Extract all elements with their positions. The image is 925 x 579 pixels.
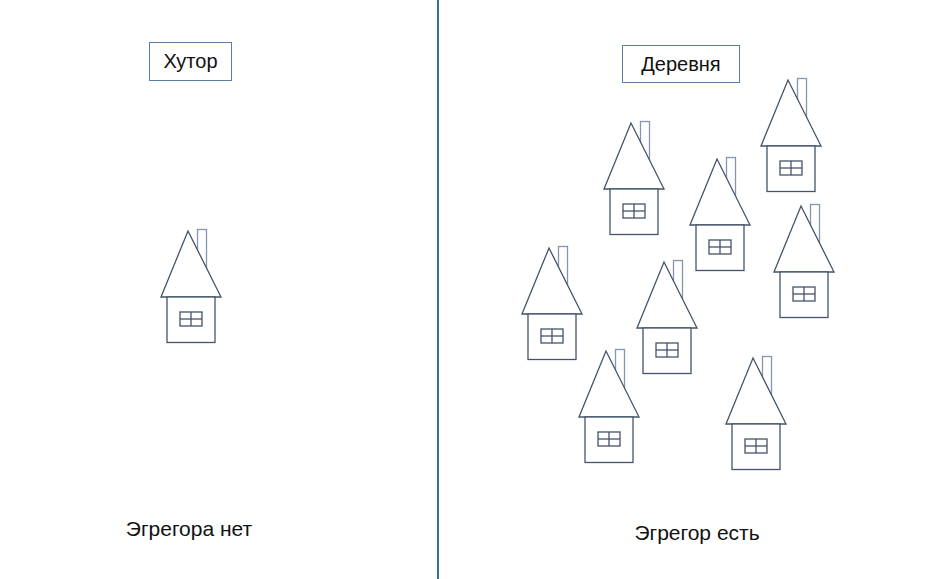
house-icon bbox=[636, 260, 698, 374]
house-icon bbox=[578, 349, 640, 463]
house-icon bbox=[760, 78, 822, 192]
right-panel-caption: Эгрегор есть bbox=[634, 521, 759, 545]
roof-icon bbox=[579, 351, 639, 417]
roof-icon bbox=[522, 248, 582, 314]
roof-icon bbox=[604, 123, 664, 189]
house-icon bbox=[725, 356, 787, 470]
diagram-canvas: Хутор Деревня bbox=[0, 0, 925, 579]
house-icon bbox=[521, 246, 583, 360]
house-icon bbox=[689, 157, 751, 271]
roof-icon bbox=[761, 80, 821, 146]
roof-icon bbox=[690, 159, 750, 225]
houses-layer bbox=[0, 0, 925, 579]
left-panel-caption: Эгрегора нет bbox=[126, 517, 252, 541]
roof-icon bbox=[774, 206, 834, 272]
house-icon bbox=[603, 121, 665, 235]
roof-icon bbox=[637, 262, 697, 328]
roof-icon bbox=[161, 231, 221, 297]
house-icon bbox=[160, 229, 222, 343]
roof-icon bbox=[726, 358, 786, 424]
house-icon bbox=[773, 204, 835, 318]
